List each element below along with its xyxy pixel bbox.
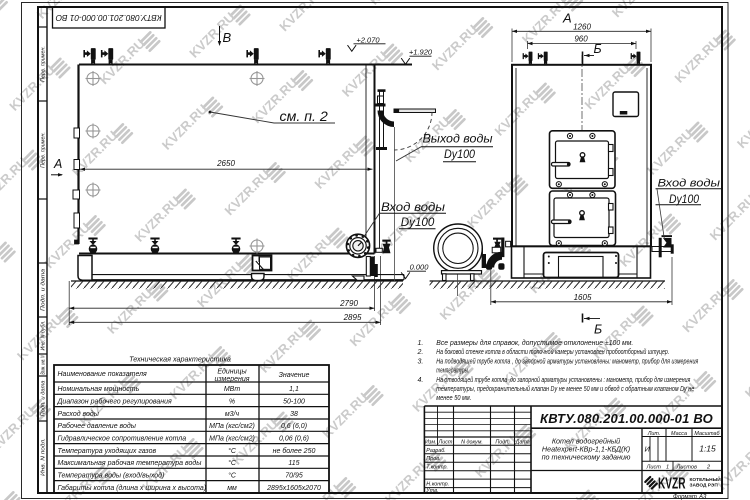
- svg-text:KVZR.RU: KVZR.RU: [131, 193, 182, 244]
- svg-text:температуры.: температуры.: [436, 368, 469, 375]
- svg-text:В: В: [223, 30, 232, 45]
- svg-text:+2.070: +2.070: [356, 35, 380, 44]
- svg-text:МПа (кгс/см2): МПа (кгс/см2): [209, 423, 255, 430]
- svg-text:Лист: Лист: [438, 440, 453, 446]
- svg-text:KVZR.RU: KVZR.RU: [464, 179, 515, 230]
- svg-text:по техническому заданию: по техническому заданию: [542, 453, 631, 462]
- svg-text:KVZR.RU: KVZR.RU: [534, 494, 585, 500]
- svg-text:2895х1605х2070: 2895х1605х2070: [266, 485, 321, 492]
- svg-text:KVZR.RU: KVZR.RU: [276, 0, 327, 34]
- svg-text:Температура уходящих газов: Температура уходящих газов: [58, 447, 157, 455]
- svg-text:см. п. 2: см. п. 2: [280, 109, 328, 125]
- svg-text:2.: 2.: [417, 349, 424, 356]
- svg-text:KVZR.RU: KVZR.RU: [6, 62, 57, 113]
- svg-text:2790: 2790: [339, 299, 358, 308]
- svg-text:Номинальная мощность: Номинальная мощность: [58, 386, 140, 393]
- svg-text:температуры, предохранительный: температуры, предохранительный клапан Dу…: [436, 385, 694, 393]
- svg-text:А: А: [53, 157, 62, 171]
- svg-text:Температура воды (вход/выход): Температура воды (вход/выход): [58, 472, 165, 480]
- svg-text:На подводящей трубе котла , д: На подводящей трубе котла , до запорной …: [436, 357, 698, 365]
- svg-text:менее 50 мм.: менее 50 мм.: [436, 395, 471, 402]
- svg-text:КВТУ.080.201.00.000-01 ВО: КВТУ.080.201.00.000-01 ВО: [540, 411, 713, 426]
- svg-text:KVZR.RU: KVZR.RU: [339, 48, 390, 99]
- svg-text:38: 38: [290, 411, 298, 418]
- svg-text:Формат: Формат: [673, 495, 697, 500]
- svg-text:KVZR.RU: KVZR.RU: [609, 0, 660, 20]
- svg-text:N докум.: N докум.: [461, 440, 483, 446]
- svg-text:не более 250: не более 250: [273, 447, 316, 455]
- svg-text:Взам. инв. N: Взам. инв. N: [40, 355, 46, 374]
- svg-text:KVZR.RU: KVZR.RU: [429, 22, 480, 73]
- svg-text:1,1: 1,1: [289, 386, 299, 393]
- svg-text:3.: 3.: [418, 358, 424, 365]
- svg-text:Диапазон рабочего регулировани: Диапазон рабочего регулирования: [57, 398, 173, 406]
- svg-text:%: %: [229, 399, 235, 406]
- svg-text:115: 115: [288, 460, 299, 467]
- svg-text:KVZR.RU: KVZR.RU: [319, 390, 370, 441]
- svg-text:Листов: Листов: [676, 464, 697, 470]
- svg-text:Утв.: Утв.: [425, 488, 438, 494]
- svg-text:4.: 4.: [418, 377, 424, 384]
- svg-text:м3/ч: м3/ч: [225, 411, 240, 418]
- svg-text:KVZR.RU: KVZR.RU: [221, 167, 272, 218]
- svg-text:1: 1: [666, 464, 669, 470]
- svg-text:70/95: 70/95: [285, 473, 303, 480]
- svg-text:°С: °С: [228, 459, 237, 467]
- svg-text:измерения: измерения: [214, 376, 249, 383]
- svg-text:0,06 (0,6): 0,06 (0,6): [279, 436, 309, 443]
- svg-text:Габариты котла (длина х ширина: Габариты котла (длина х ширина х высота): [58, 484, 207, 492]
- svg-text:Подп. и дата: Подп. и дата: [40, 269, 46, 311]
- svg-text:KVZR.RU: KVZR.RU: [257, 324, 308, 375]
- svg-text:°С: °С: [228, 447, 237, 455]
- svg-text:Рабочее давление воды: Рабочее давление воды: [58, 422, 137, 430]
- svg-text:50-100: 50-100: [283, 399, 305, 406]
- svg-text:МВт: МВт: [224, 386, 241, 393]
- svg-text:KVZR.RU: KVZR.RU: [96, 36, 147, 87]
- svg-text:Техническая характеристика: Техническая характеристика: [129, 354, 231, 363]
- svg-text:2895: 2895: [343, 313, 362, 322]
- svg-text:Масса: Масса: [671, 431, 687, 437]
- svg-text:KVZR.RU: KVZR.RU: [0, 404, 38, 455]
- svg-text:KVZR.RU: KVZR.RU: [104, 285, 155, 336]
- svg-text:МПа (кгс/см2): МПа (кгс/см2): [209, 436, 255, 443]
- svg-text:KVZR.RU: KVZR.RU: [742, 349, 750, 400]
- svg-text:0.000: 0.000: [410, 263, 430, 272]
- svg-text:Гидравлическое сопротивление к: Гидравлическое сопротивление котла: [58, 435, 187, 443]
- svg-text:Н.контр.: Н.контр.: [426, 482, 449, 488]
- svg-text:Инв. N дубл.: Инв. N дубл.: [40, 321, 46, 351]
- svg-text:Пров.: Пров.: [426, 456, 440, 462]
- svg-text:Б: Б: [594, 42, 602, 56]
- svg-text:Единицы: Единицы: [217, 368, 247, 376]
- svg-text:2650: 2650: [216, 159, 235, 168]
- svg-text:2: 2: [706, 464, 711, 470]
- svg-text:мм: мм: [227, 485, 237, 492]
- svg-text:Подп. и дата: Подп. и дата: [40, 381, 46, 417]
- svg-text:°С: °С: [228, 472, 237, 480]
- svg-text:1.: 1.: [418, 340, 424, 347]
- svg-text:И: И: [645, 445, 651, 454]
- svg-text:Вход воды: Вход воды: [381, 202, 446, 214]
- svg-text:Лист: Лист: [646, 464, 662, 470]
- svg-text:Подп.: Подп.: [495, 440, 509, 446]
- svg-text:Инв. N подл.: Инв. N подл.: [40, 438, 46, 476]
- svg-text:КВТУ.080.201.00.000-01 ВО: КВТУ.080.201.00.000-01 ВО: [56, 13, 162, 22]
- svg-text:1605: 1605: [574, 293, 592, 302]
- svg-text:Расход воды: Расход воды: [58, 410, 100, 418]
- svg-text:Наименование показателя: Наименование показателя: [58, 371, 148, 378]
- svg-text:KVZR.RU: KVZR.RU: [679, 284, 730, 335]
- svg-text:Все размеры для справок, допус: Все размеры для справок, допустимое откл…: [436, 339, 633, 347]
- svg-text:На боковой стенке котла в обла: На боковой стенке котла в области топочн…: [436, 348, 669, 356]
- svg-text:Разраб.: Разраб.: [426, 448, 446, 454]
- svg-text:Вход воды: Вход воды: [658, 177, 721, 189]
- svg-text:Максимальная рабочая температу: Максимальная рабочая температура воды: [58, 459, 203, 467]
- svg-text:KVZR.RU: KVZR.RU: [714, 441, 750, 492]
- svg-text:Dy100: Dy100: [444, 147, 475, 161]
- svg-text:А: А: [562, 11, 572, 26]
- svg-text:Dy100: Dy100: [401, 215, 435, 229]
- svg-text:На отводящей трубе котла ,до з: На отводящей трубе котла ,до запорной ар…: [436, 376, 690, 384]
- svg-text:1:15: 1:15: [699, 444, 716, 454]
- svg-text:Значение: Значение: [279, 372, 310, 379]
- svg-text:KVZR.RU: KVZR.RU: [0, 154, 30, 205]
- svg-text:Б: Б: [594, 323, 602, 337]
- svg-text:1260: 1260: [573, 22, 591, 31]
- svg-text:Dy100: Dy100: [669, 194, 700, 206]
- svg-text:Перв. примен.: Перв. примен.: [40, 46, 46, 82]
- svg-text:ЗАВОД РЭП: ЗАВОД РЭП: [690, 483, 719, 489]
- svg-text:0,6 (6,0): 0,6 (6,0): [281, 423, 307, 430]
- svg-text:KVZR.RU: KVZR.RU: [671, 34, 722, 85]
- svg-text:Изм.: Изм.: [425, 440, 437, 446]
- svg-text:Масштаб: Масштаб: [694, 431, 720, 437]
- svg-text:КОТЕЛЬНЫЙ: КОТЕЛЬНЫЙ: [690, 475, 722, 483]
- svg-text:А3: А3: [698, 495, 707, 500]
- svg-text:KVZR.RU: KVZR.RU: [311, 140, 362, 191]
- svg-text:960: 960: [574, 34, 588, 43]
- svg-text:+1.920: +1.920: [409, 48, 433, 57]
- svg-text:KVZR.RU: KVZR.RU: [734, 100, 750, 151]
- svg-text:Выход воды: Выход воды: [423, 132, 493, 146]
- svg-text:KVZR: KVZR: [658, 476, 686, 493]
- svg-text:Т.контр.: Т.контр.: [426, 465, 448, 471]
- svg-text:Перв. примен.: Перв. примен.: [40, 132, 46, 168]
- svg-text:Лит.: Лит.: [647, 431, 661, 437]
- svg-text:KVZR.RU: KVZR.RU: [284, 232, 335, 283]
- svg-text:KVZR.RU: KVZR.RU: [159, 101, 210, 152]
- svg-text:Дата: Дата: [515, 440, 530, 446]
- svg-text:KVZR.RU: KVZR.RU: [491, 87, 542, 138]
